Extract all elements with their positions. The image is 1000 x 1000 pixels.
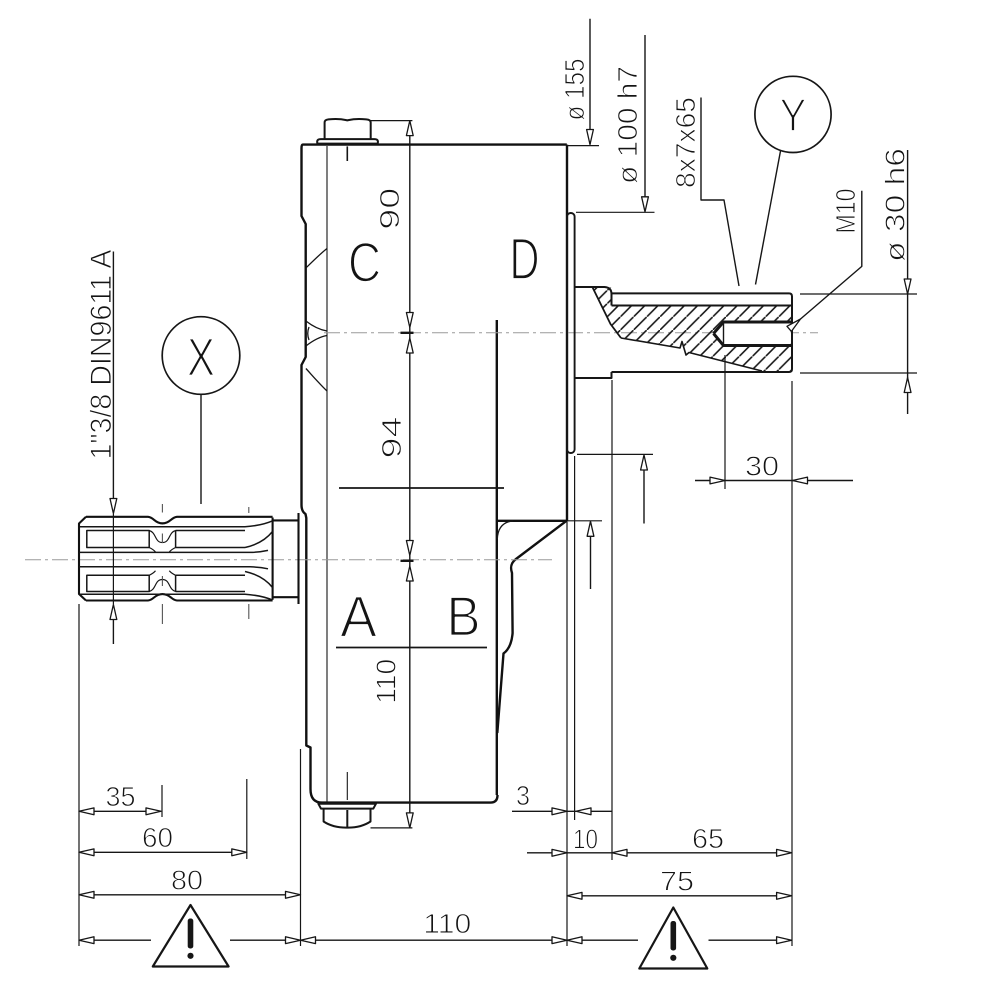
svg-text:3: 3 — [516, 780, 530, 811]
svg-text:35: 35 — [106, 781, 136, 812]
svg-text:M10: M10 — [830, 189, 861, 234]
svg-text:ø 30 h6: ø 30 h6 — [880, 148, 911, 262]
svg-text:75: 75 — [660, 866, 694, 897]
svg-text:10: 10 — [573, 824, 598, 855]
svg-text:A: A — [340, 585, 377, 650]
svg-text:60: 60 — [142, 822, 173, 853]
svg-text:X: X — [187, 328, 215, 388]
svg-text:ø 100 h7: ø 100 h7 — [612, 66, 643, 184]
svg-text:30: 30 — [745, 451, 779, 482]
svg-text:65: 65 — [692, 823, 724, 854]
svg-text:90: 90 — [374, 188, 405, 230]
svg-text:ø 155: ø 155 — [559, 59, 590, 121]
svg-text:Y: Y — [780, 89, 807, 141]
svg-text:80: 80 — [171, 865, 203, 896]
svg-text:C: C — [348, 230, 381, 293]
svg-text:8x7x65: 8x7x65 — [670, 97, 701, 188]
svg-text:B: B — [447, 585, 481, 648]
svg-text:110: 110 — [423, 908, 471, 939]
svg-text:94: 94 — [376, 417, 407, 459]
svg-text:110: 110 — [371, 659, 402, 704]
svg-text:D: D — [510, 227, 540, 292]
svg-text:1"3/8 DIN9611 A: 1"3/8 DIN9611 A — [85, 250, 118, 460]
